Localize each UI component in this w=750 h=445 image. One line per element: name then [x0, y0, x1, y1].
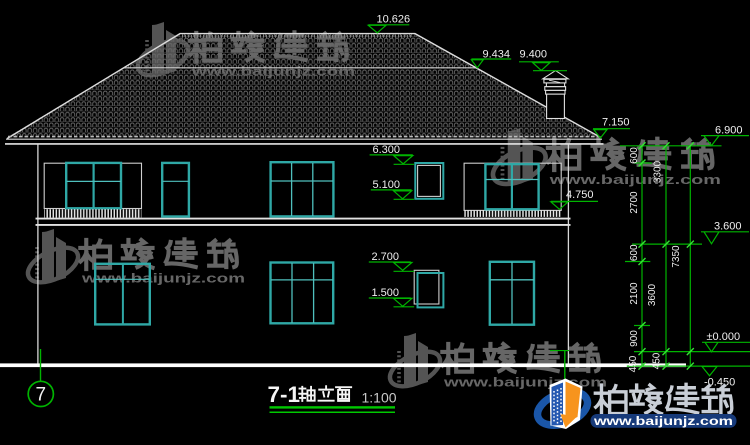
svg-text:900: 900	[629, 330, 640, 347]
svg-text:10.626: 10.626	[377, 14, 411, 26]
svg-text:www.baijunjz.com: www.baijunjz.com	[593, 416, 733, 428]
svg-text:6.900: 6.900	[715, 125, 743, 137]
svg-text:4.750: 4.750	[566, 189, 594, 201]
svg-text:3.600: 3.600	[714, 221, 742, 233]
svg-text:450: 450	[652, 352, 663, 369]
svg-text:9.400: 9.400	[520, 49, 548, 61]
svg-text:9.434: 9.434	[483, 49, 511, 61]
svg-text:600: 600	[629, 147, 640, 164]
svg-text:1.500: 1.500	[372, 287, 400, 299]
svg-text:6.300: 6.300	[373, 144, 401, 156]
svg-text:2.700: 2.700	[372, 251, 400, 263]
svg-text:±0.000: ±0.000	[707, 331, 741, 343]
svg-text:2700: 2700	[629, 191, 640, 214]
svg-text:600: 600	[629, 244, 640, 261]
svg-text:3600: 3600	[647, 283, 658, 306]
svg-text:7.150: 7.150	[602, 117, 630, 129]
svg-text:450: 450	[628, 355, 639, 372]
svg-text:2100: 2100	[629, 282, 640, 305]
svg-text:5.100: 5.100	[373, 179, 401, 191]
svg-text:7-1: 7-1	[268, 382, 301, 407]
svg-text:7350: 7350	[671, 245, 682, 268]
svg-text:1:100: 1:100	[362, 390, 397, 406]
svg-text:3300: 3300	[653, 160, 664, 183]
svg-text:7: 7	[36, 385, 47, 406]
